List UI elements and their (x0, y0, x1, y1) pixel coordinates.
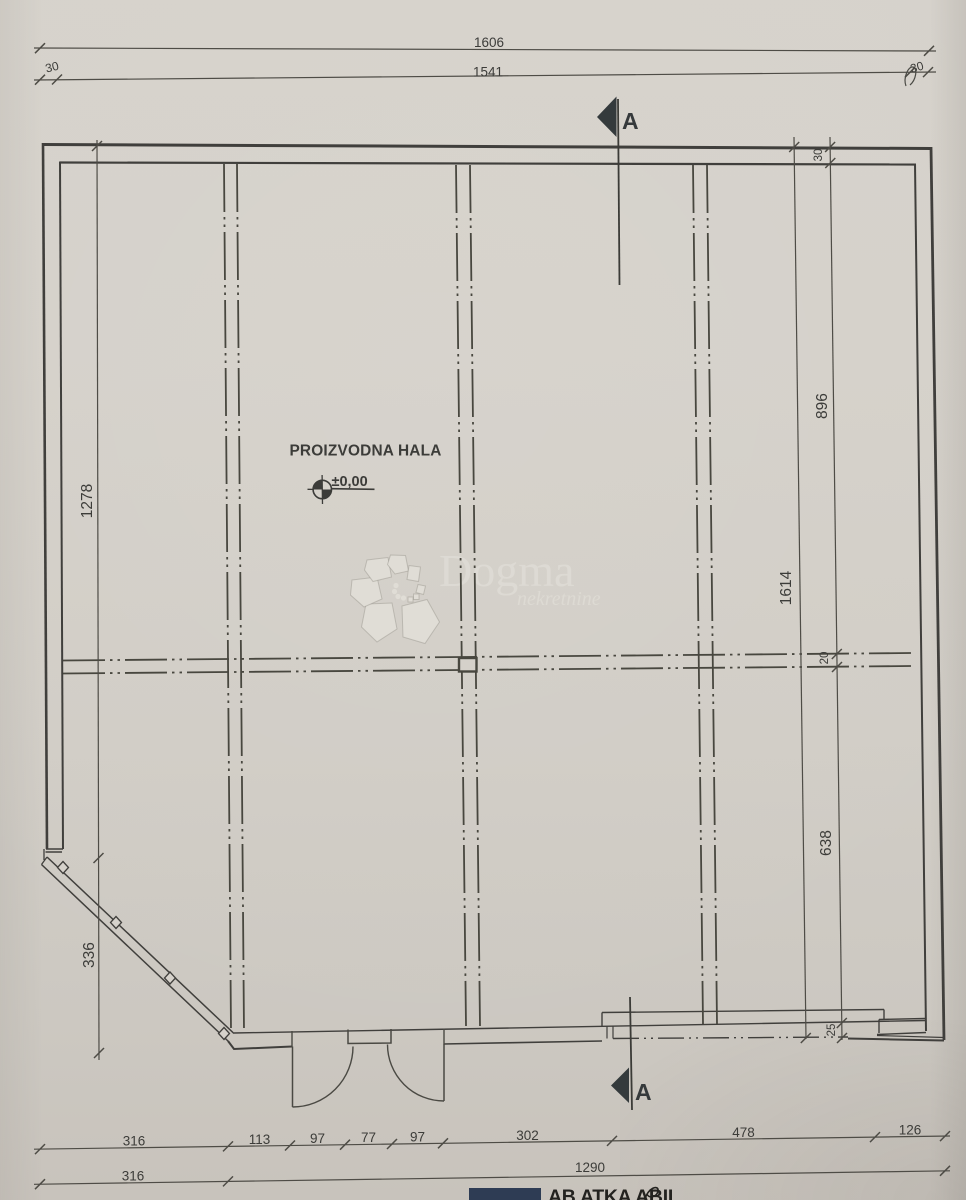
svg-text:25: 25 (826, 1024, 838, 1037)
svg-text:336: 336 (81, 942, 98, 968)
svg-text:A: A (622, 108, 639, 134)
svg-text:nekretnine: nekretnine (517, 588, 601, 610)
svg-text:±0,00: ±0,00 (332, 474, 368, 490)
svg-text:77: 77 (361, 1130, 376, 1145)
svg-text:1614: 1614 (778, 570, 795, 605)
svg-text:A: A (635, 1079, 652, 1105)
svg-text:638: 638 (818, 830, 835, 856)
svg-text:126: 126 (899, 1122, 922, 1137)
svg-text:113: 113 (249, 1132, 271, 1147)
svg-text:20: 20 (819, 652, 831, 665)
svg-text:896: 896 (814, 393, 831, 419)
svg-text:AB ATKA ABIL: AB ATKA ABIL (548, 1186, 680, 1200)
svg-text:302: 302 (516, 1128, 539, 1143)
svg-text:478: 478 (732, 1125, 755, 1140)
svg-text:1290: 1290 (575, 1160, 605, 1175)
svg-text:1278: 1278 (79, 484, 96, 518)
svg-text:1606: 1606 (474, 35, 504, 50)
svg-text:97: 97 (410, 1130, 425, 1145)
svg-text:PROIZVODNA HALA: PROIZVODNA HALA (289, 443, 441, 460)
svg-text:30: 30 (813, 149, 825, 162)
svg-text:316: 316 (122, 1169, 145, 1184)
svg-text:316: 316 (123, 1134, 146, 1149)
svg-text:97: 97 (310, 1131, 325, 1146)
svg-text:30: 30 (44, 59, 61, 76)
svg-text:1541: 1541 (473, 65, 503, 80)
